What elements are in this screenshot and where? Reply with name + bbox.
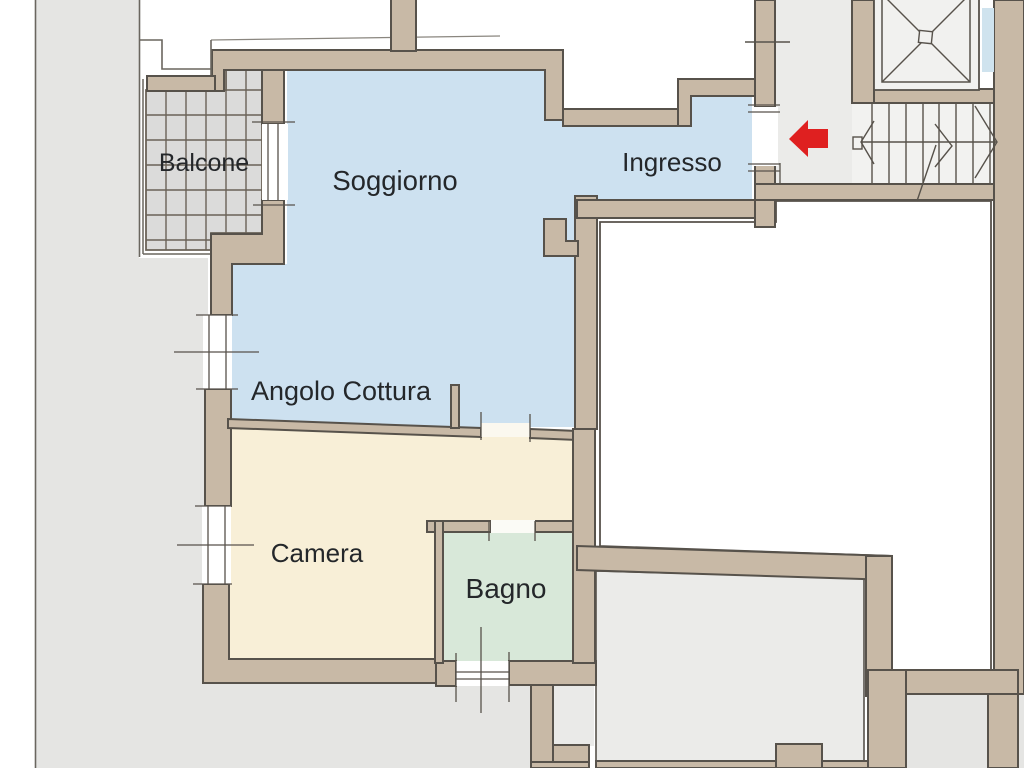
svg-text:Camera: Camera: [271, 538, 364, 568]
svg-text:Ingresso: Ingresso: [622, 147, 722, 177]
svg-text:Soggiorno: Soggiorno: [332, 165, 457, 196]
svg-text:Angolo Cottura: Angolo Cottura: [251, 376, 432, 406]
svg-text:Bagno: Bagno: [466, 573, 547, 604]
svg-text:Balcone: Balcone: [159, 149, 249, 177]
